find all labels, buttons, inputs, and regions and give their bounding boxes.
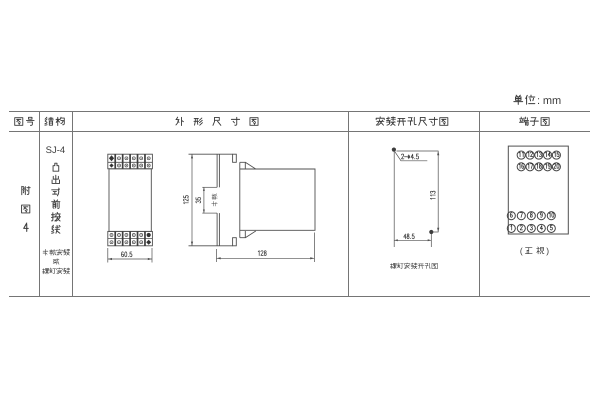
svg-text:SJ-4: SJ-4: [46, 145, 66, 156]
svg-text::: :: [537, 95, 540, 107]
svg-text:): ): [546, 246, 549, 256]
svg-text:mm: mm: [543, 95, 561, 107]
svg-text:(: (: [520, 246, 523, 256]
